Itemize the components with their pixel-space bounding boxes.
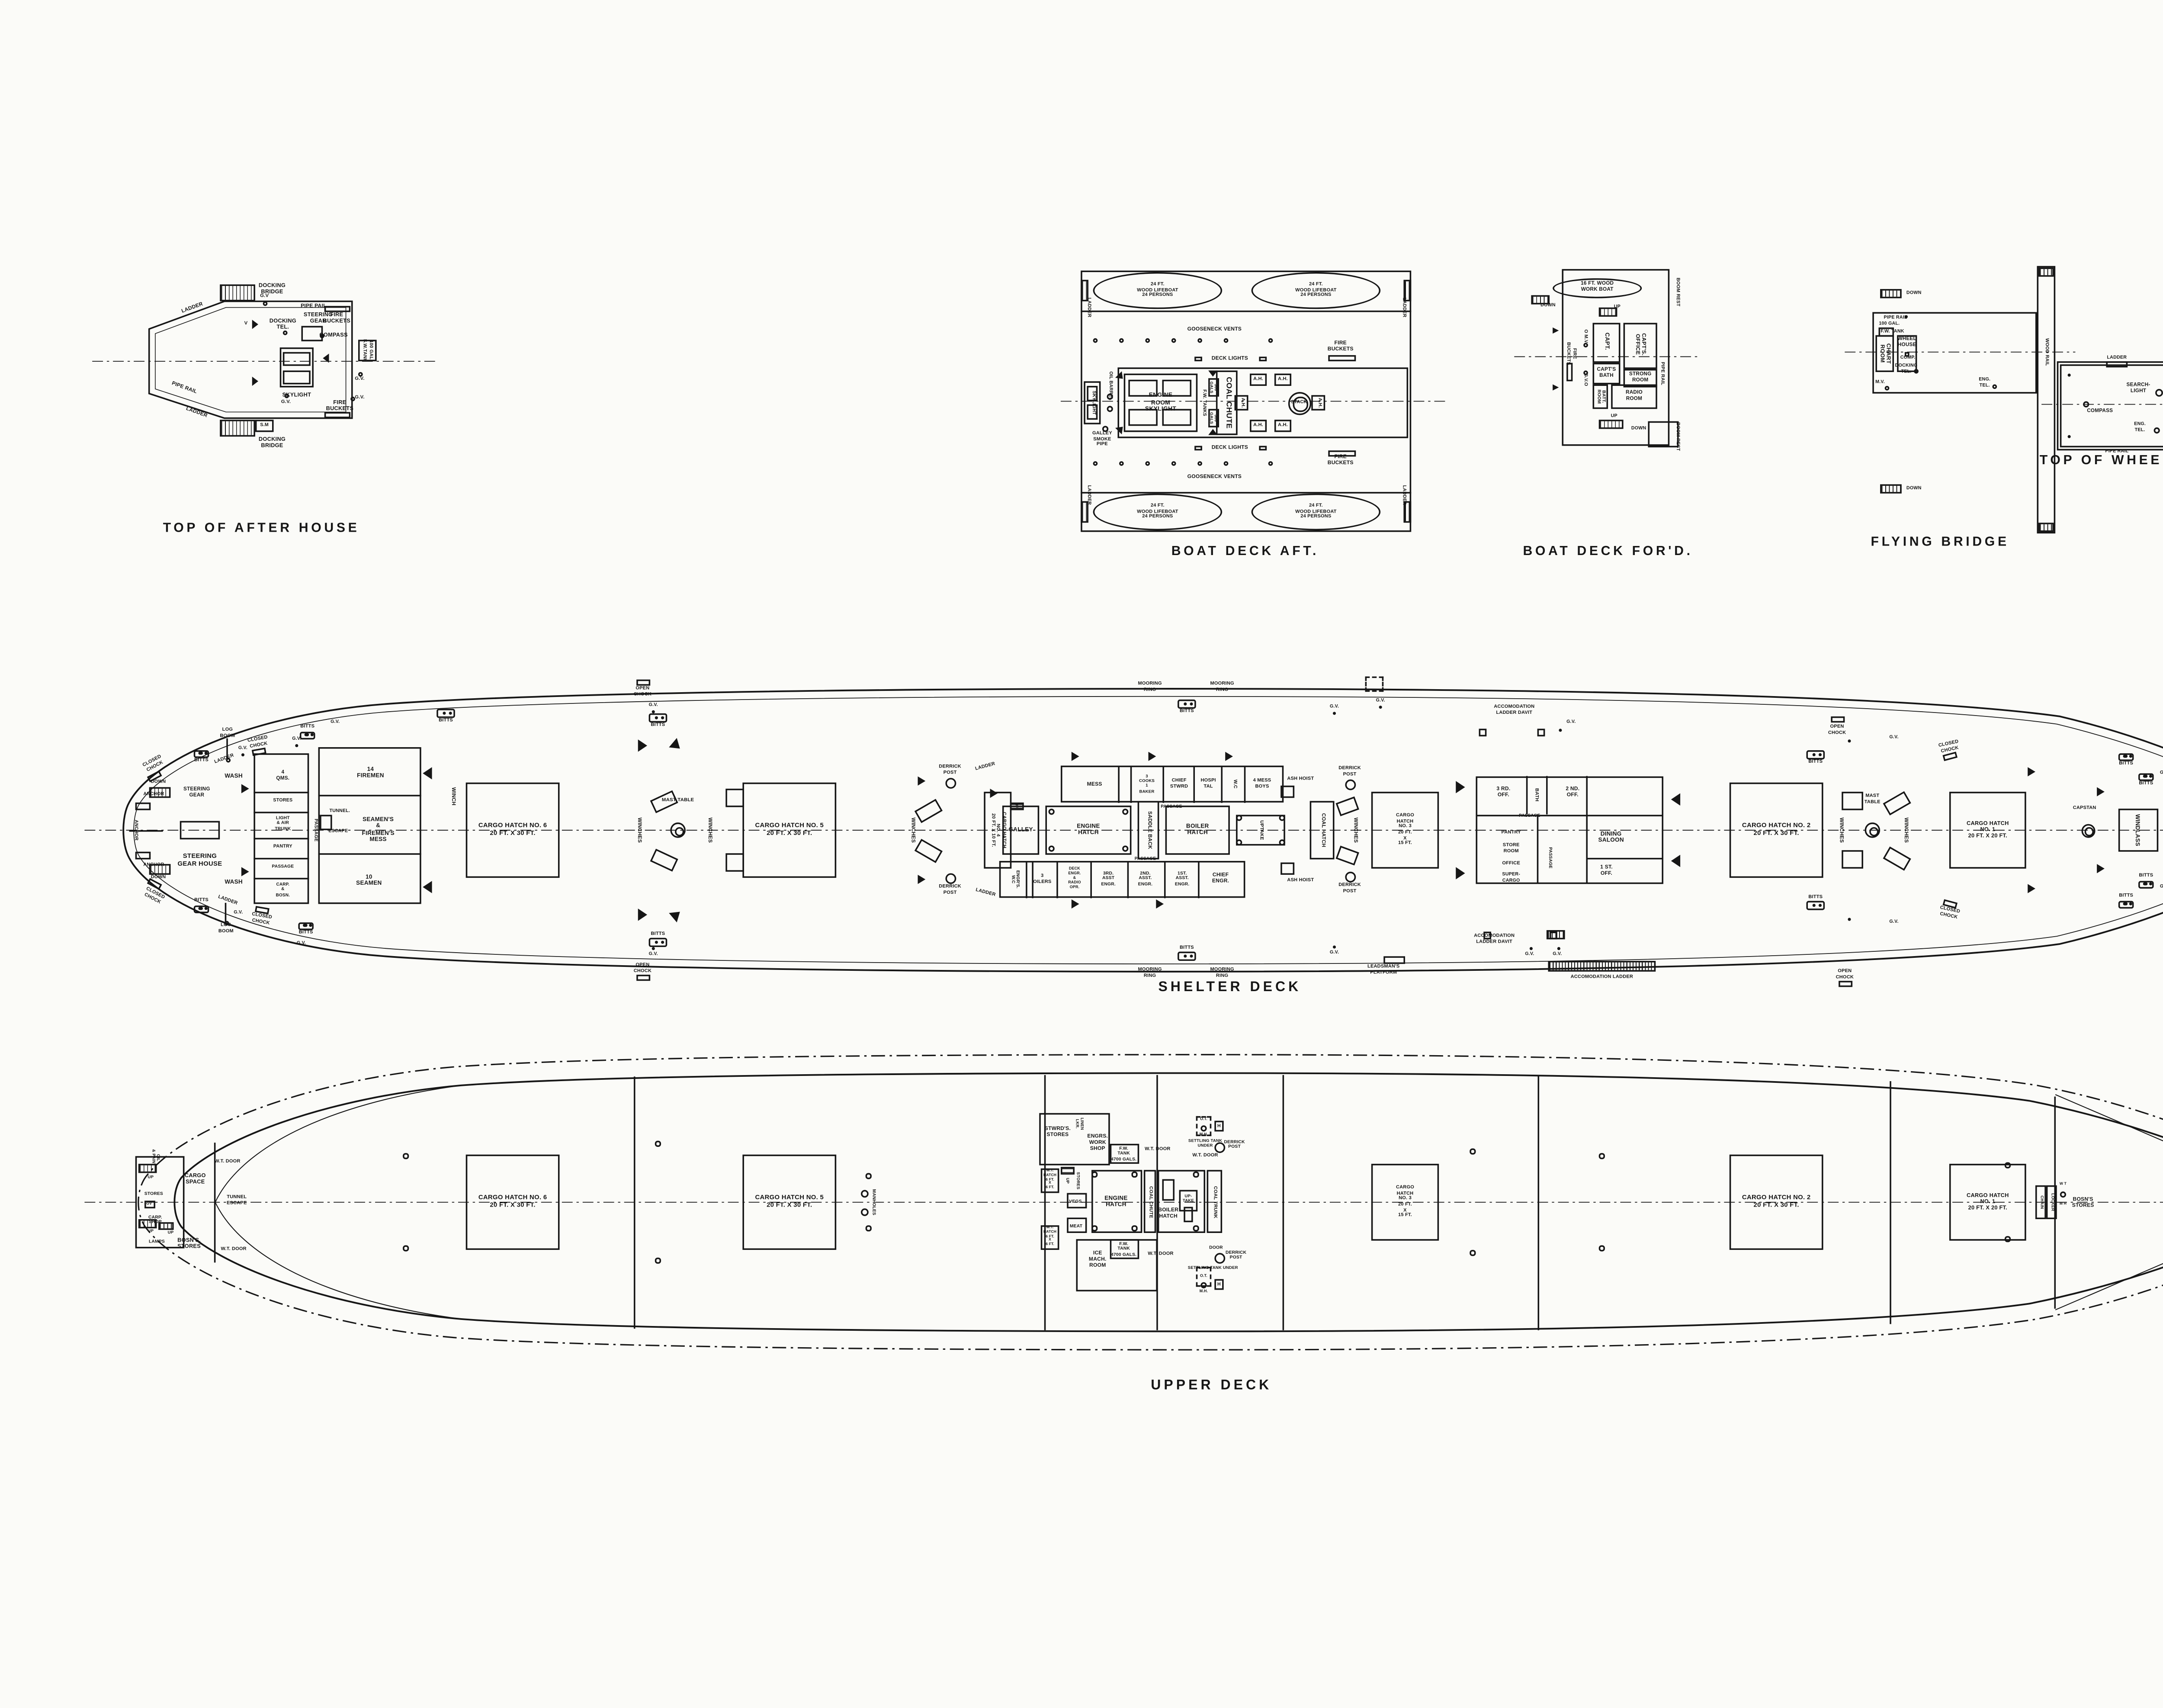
upper-deck-label-41: DOOR [1209,1246,1223,1251]
after-house-vc-mark-8 [251,320,257,329]
shelter-deck-label-73: DERRICK POST [1338,766,1361,777]
shelter-deck-label-87: 2ND. ASST. ENGR. [1138,871,1153,887]
shelter-deck-b-mark-30-dot-0 [303,924,307,927]
shelter-deck-label-94: CARGO HATCH NO. 3 20 FT. X 15 FT. [1396,813,1414,847]
shelter-deck-label-101: OFFICE [1502,861,1520,867]
shelter-deck-label-56: BITTS [1180,946,1194,951]
after-house-label-12: G.V. [281,400,291,405]
shelter-deck-label-118: WINCHES [1903,818,1909,843]
boat-deck-aft-label-28: GOOSENECK VENTS [1187,473,1242,479]
shelter-deck-label-106: LEADSMAN'S PLATFORM [1367,964,1399,976]
shelter-deck-label-8: G.V. [331,720,340,726]
shelter-deck-b-mark-37-dot-1 [1819,904,1822,907]
shelter-deck-label-49: BITTS [651,932,665,937]
shelter-deck-label-40: CARGO HATCH NO. 6 20 FT. X 30 FT. [478,822,547,838]
boat-deck-aft-label-8: GOOSENECK VENTS [1187,326,1242,332]
shelter-deck-vc-mark-64 [2028,766,2036,775]
wheel-house-top-label-0: LADDER [2107,356,2127,361]
upper-deck-c-mark-17 [1599,1153,1605,1159]
shelter-deck-label-45: WINCHES [636,818,642,843]
upper-deck-label-29: BOILER HATCH [1158,1207,1178,1220]
shelter-deck-label-103: PASSAGE [1547,847,1552,868]
shelter-deck-label-90: G.V. [1330,704,1339,710]
upper-deck-l-mark-3 [1157,1075,1158,1330]
shelter-deck-b-mark-27-dot-0 [199,751,202,755]
shelter-deck-label-50: CARGO HATCH NO. 5 20 FT. X 30 FT. [755,822,824,838]
upper-deck-c-mark-16 [1470,1250,1475,1255]
shelter-deck-st-mark-111 [1547,930,1565,939]
upper-deck-label-16: STWRD'S. STORES [1045,1125,1071,1138]
shelter-deck-l-mark-16 [1091,861,1092,898]
shelter-deck-label-23: PANTRY [273,844,292,850]
upper-deck-label-46: H [1217,1282,1221,1287]
shelter-deck-vc-mark-61 [1671,855,1680,867]
shelter-deck-label-44: MAST TABLE [662,798,694,804]
shelter-deck-label-54: MOORING RING [1138,967,1162,979]
shelter-deck-l-mark-8 [1131,766,1132,803]
boat-deck-aft-label-3: 24 FT. WOOD LIFEBOAT 24 PERSONS [1295,504,1337,520]
shelter-deck-l-mark-17 [1128,861,1129,898]
shelter-deck-label-64: GALLEY [1008,827,1033,834]
shelter-deck-b-mark-28-dot-1 [310,733,313,737]
shelter-deck-label-115: G.V. [1889,735,1898,741]
shelter-deck-label-10: DOWN [151,875,166,881]
after-house-label-7: COMPASS [319,332,347,338]
shelter-deck-l-mark-1 [254,811,309,812]
shelter-deck-b-mark-40-dot-1 [2128,902,2132,906]
upper-deck-label-43: SETTLING TANK UNDER [1188,1266,1238,1271]
shelter-deck-label-76: 3 COOKS 1 BAKER [1139,774,1155,794]
shelter-deck-label-129: G.V. [2160,771,2163,776]
upper-deck-label-32: W.T. DOOR [1192,1153,1218,1159]
shelter-deck-label-99: PANTRY [1502,831,1521,836]
upper-deck-c-mark-14 [866,1226,871,1231]
upper-deck-l-mark-2 [1045,1075,1046,1330]
flying-bridge-label-11: DOWN [1906,486,1922,492]
upper-deck-st-mark-37 [1060,1166,1074,1174]
flying-bridge-label-3: F.W. TANK [1881,329,1904,334]
shelter-deck-box-24 [1365,677,1384,692]
shelter-deck-l-mark-9 [1163,766,1164,803]
upper-deck-label-51: LOCKER [2049,1193,2054,1211]
shelter-deck-vc-mark-50 [1072,751,1080,760]
boat-deck-aft-label-10: FIRE BUCKETS [1328,340,1354,352]
shelter-deck-label-77: CHIEF STWRD [1170,778,1188,790]
boat-deck-ford-label-6: O M.V. [1582,329,1588,344]
drawing-sheet: 1032 SHEET 2 OF 2 DOCKING BRIDGELADDERPI… [0,0,2163,1708]
after-house-label-9: 100 GAL. S.W.TANK [362,339,373,362]
boat-deck-ford-label-17: BOAT DECK FOR'D. [1523,543,1693,558]
boat-deck-aft-r-mark-22 [1258,356,1266,361]
flying-bridge-label-5: WHEEL HOUSE [1897,337,1916,349]
upper-deck-label-19: F.W. TANK 4700 GALS. [1111,1147,1136,1162]
shelter-deck-l-mark-5 [318,794,421,795]
boat-deck-ford-label-0: 16 FT. WOOD WORK BOAT [1581,282,1614,294]
shelter-deck-label-67: BOILER HATCH [1186,823,1209,837]
shelter-deck-l-mark-19 [1199,861,1200,898]
boat-deck-aft-label-7: LADDER [1401,485,1406,505]
shelter-deck-label-124: CARGO HATCH NO. 1 20 FT. X 20 FT. [1967,820,2009,840]
upper-deck-c-mark-20 [2005,1236,2010,1242]
shelter-deck-label-18: STEERING GEAR [183,787,210,799]
shelter-deck-label-41: OPEN CHOCK [634,686,651,697]
shelter-deck-label-51: MOORING RING [1138,682,1162,693]
shelter-deck-l-mark-2 [254,838,309,838]
shelter-deck-label-111: ACCOMODATION LADDER [1571,975,1633,981]
shelter-deck-c-mark-69 [1049,845,1055,851]
shelter-deck-label-81: PASSAGE [1161,804,1182,809]
upper-deck-label-35: H [1217,1124,1221,1129]
shelter-deck-label-21: STORES [273,798,292,804]
shelter-deck-label-38: BITTS [299,931,313,936]
upper-deck-c-mark-22 [1132,1172,1137,1177]
shelter-deck-label-3: G.V. [238,746,247,751]
shelter-deck-cc-mark-102-inner [1869,827,1879,837]
boat-deck-aft-label-13: GALLEY SMOKE PIPE [1092,431,1112,448]
upper-deck-label-18: ENGRS. WORK SHOP [1087,1133,1108,1152]
upper-deck-label-54: BOSN'S STORES [2072,1196,2094,1209]
upper-deck-label-17: LINEN LKR. [1075,1117,1084,1130]
upper-deck-c-mark-15 [1470,1149,1475,1154]
boat-deck-aft-label-23: A.H. [1239,398,1244,408]
wheel-house-top-label-1: SEARCH- LIGHT [2127,383,2150,395]
shelter-deck-label-57: DERRICK POST [939,764,961,776]
shelter-deck-label-126: BITTS [2139,781,2153,787]
shelter-deck-label-112: CARGO HATCH NO. 2 20 FT. X 30 FT. [1742,822,1811,838]
shelter-deck-label-11: ANCHOR [132,820,138,841]
shelter-deck-label-6: BITTS [300,724,315,730]
shelter-deck-hb-mark-137 [1548,960,1656,971]
upper-deck-label-50: CHAIN [2039,1195,2044,1209]
shelter-deck-vc-mark-54 [1156,899,1164,908]
upper-deck-label-1: UP [148,1175,154,1180]
upper-deck-l-mark-7 [2055,1096,2056,1308]
flying-bridge-st-mark-3 [2038,523,2054,532]
shelter-deck-vc-mark-48 [638,909,647,921]
shelter-deck-label-85: DECK ENGR. & RADIO OPR. [1068,868,1081,891]
shelter-deck-label-66: SADDLE BACK [1146,811,1152,849]
upper-deck-c-mark-25 [1193,1172,1198,1177]
shelter-deck-box-21 [1537,729,1545,736]
shelter-deck-label-35: G.V. [234,911,243,916]
boat-deck-aft-label-27: FIRE BUCKETS [1328,453,1354,466]
upper-deck-label-11: W.T. DOOR [221,1247,246,1253]
boat-deck-ford-label-9: CAPT'S. OFFICE [1634,333,1647,356]
boat-deck-aft-c-mark-34 [1107,406,1113,412]
after-house-st-mark-0 [220,284,255,301]
shelter-deck-r-mark-91 [725,789,744,807]
upper-deck-ld-mark-8 [860,1075,861,1330]
shelter-deck-label-32: WINCH [450,787,456,806]
shelter-deck-label-109: G.V. [1525,952,1534,958]
boat-deck-ford-label-16: DOWN [1631,426,1646,432]
shelter-deck-vc-mark-60 [1671,793,1680,806]
upper-deck-label-45: M.H. [1200,1291,1208,1295]
shelter-deck-label-78: HOSPI TAL [1200,778,1216,790]
shelter-deck-label-86: 3RD. ASST ENGR. [1101,871,1116,887]
boat-deck-aft-label-12: SKYLIGHT [1090,391,1096,415]
shelter-deck-b-mark-28-dot-0 [305,733,308,737]
shelter-deck-label-30: SEAMEN'S & FIREMEN'S MESS [362,816,394,844]
shelter-deck-label-113: OPEN CHOCK [1828,725,1846,736]
boat-deck-ford-label-8: CAPT. [1603,333,1610,350]
shelter-deck-label-100: STORE ROOM [1503,843,1520,854]
shelter-deck-label-24: PASSAGE [272,864,294,870]
page-scaler: 1032 SHEET 2 OF 2 DOCKING BRIDGELADDERPI… [0,0,2163,1708]
boat-deck-aft-r-mark-21 [1194,356,1201,361]
shelter-deck-label-5: BITTS [194,758,209,764]
shelter-deck-b-mark-41-dot-0 [2144,882,2147,886]
shelter-deck-label-62: CARGO HATCH NO. 4 20 FT. X 10 FT. [989,812,1006,848]
shelter-deck-r-mark-97 [1842,792,1863,810]
shelter-deck-label-79: W.C [1232,780,1237,789]
upper-deck-c-mark-10 [403,1246,408,1251]
boat-deck-aft-label-25: STACK [1291,400,1307,406]
boat-deck-aft-label-29: BOAT DECK AFT. [1171,543,1319,558]
upper-deck-label-25: VEGS. [1069,1200,1083,1205]
upper-deck-c-mark-9 [403,1153,408,1159]
shelter-deck-label-70: ASH HOIST [1287,878,1314,884]
shelter-deck-cc-mark-101 [670,822,686,838]
shelter-deck-box-18 [1280,786,1294,798]
boat-deck-aft-label-14: ENGINE ROOM SKYLIGHT [1145,392,1176,413]
shelter-deck-b-mark-33 [649,938,668,947]
shelter-deck-l-mark-15 [1057,861,1058,898]
shelter-deck-c-mark-70 [1122,845,1128,851]
boat-deck-ford-label-12: BATT. ROOM [1595,389,1605,404]
boat-deck-aft-label-5: LADDER [1401,298,1406,318]
shelter-deck-vc-mark-52 [1226,751,1233,760]
upper-deck-c-mark-11 [655,1141,661,1146]
shelter-deck-label-135: CAPSTAN [2073,806,2096,812]
shelter-deck-vc-mark-59 [1456,867,1465,879]
flying-bridge-box-1 [2037,266,2056,533]
shelter-deck-label-42: G.V. [649,703,658,709]
shelter-deck-b-mark-29-dot-0 [199,907,202,910]
boat-deck-aft-label-1: 24 FT. WOOD LIFEBOAT 24 PERSONS [1295,282,1337,299]
shelter-deck-label-25: CARP. & BOSN. [276,883,290,898]
upper-deck-label-30: UP- TAKE [1183,1194,1194,1204]
shelter-deck-label-120: BITTS [1808,895,1823,901]
boat-deck-ford-label-5: FIRE BUCKETS [1566,342,1576,365]
shelter-deck-label-39: G.V. [297,941,306,947]
upper-deck-l-mark-1 [635,1076,635,1329]
boat-deck-aft-label-11: OIL BARREL [1107,371,1113,400]
shelter-deck-b-mark-30 [298,921,314,929]
shelter-deck-label-89: CHIEF ENGR. [1212,872,1229,884]
boat-deck-aft-r-mark-23 [1194,445,1201,450]
boat-deck-ford-label-14: PIPE RAIL [1659,362,1665,385]
upper-deck-label-26: MEAT [1070,1224,1082,1230]
boat-deck-aft-label-15: F.W. TANKS [1200,389,1206,416]
shelter-deck-b-mark-27 [194,749,209,757]
upper-deck-label-22: W.T. HATCH 6 FT. X 6 FT. [1043,1227,1056,1249]
shelter-deck-label-68: UPTAKE [1258,820,1263,840]
shelter-deck-vc-mark-55 [990,788,998,797]
boat-deck-ford-label-2: UP [1614,305,1621,310]
shelter-deck-label-74: DERRICK POST [1338,883,1361,894]
shelter-deck-label-80: 4 MESS BOYS [1253,778,1271,790]
flying-bridge-label-2: 100 GAL. [1879,322,1900,327]
shelter-deck-b-mark-34-dot-1 [1190,703,1193,706]
upper-deck-label-28: COAL CHUTE [1147,1186,1153,1218]
upper-deck-c-mark-19 [2005,1162,2010,1168]
after-house-label-11: G.V. [355,377,365,382]
upper-deck-label-38: ICE MACH. ROOM [1089,1250,1107,1268]
after-house-label-6: DOCKING TEL. [270,318,296,331]
upper-deck-label-24: STORES [1075,1172,1080,1189]
shelter-deck-b-mark-27-dot-1 [204,751,207,755]
shelter-deck-r-mark-92 [725,853,744,872]
wheel-house-top-label-5: TOP OF WHEEL HOUSE [2040,452,2163,468]
shelter-deck-label-110: G.V. [1553,952,1562,958]
shelter-deck-label-28: ESCAPE [328,829,348,835]
shelter-deck-label-105: 1 ST. OFF. [1600,864,1613,876]
boat-deck-aft-label-18: COAL CHUTE [1222,377,1231,429]
shelter-deck-cc-mark-101-inner [674,827,684,837]
shelter-deck-box-19 [1280,863,1294,875]
after-house-vc-mark-10 [322,353,328,363]
shelter-deck-b-mark-29-dot-1 [204,907,207,910]
wheel-house-top-c-mark-1 [2083,401,2089,407]
upper-deck-label-53: M H [2060,1203,2067,1207]
after-house-label-5: STEERING GEAR [304,312,333,325]
shelter-deck-label-46: WINCHES [707,818,713,843]
shelter-deck-l-mark-25 [1586,857,1663,858]
after-house-box-2 [283,370,311,384]
shelter-deck-b-mark-39-dot-0 [2144,775,2147,778]
shelter-deck-label-125: BITTS [2119,761,2133,767]
flying-bridge-label-7: DOCKING TEL. [1895,363,1918,374]
upper-deck-c-mark-31 [2060,1191,2066,1198]
shelter-deck-label-13: ANCHOR [143,863,164,868]
shelter-deck-b-mark-34-dot-0 [1184,703,1187,706]
upper-deck-label-3: GV [146,1203,152,1207]
shelter-deck-label-37: BITTS [194,898,209,904]
flying-bridge-st-mark-2 [2038,267,2054,276]
boat-deck-aft-r-mark-24 [1258,445,1266,450]
shelter-deck-label-43: BITTS [651,723,665,729]
boat-deck-aft-label-9: DECK LIGHTS [1212,355,1248,361]
shelter-deck-label-31: 10 SEAMEN [356,874,382,888]
boat-deck-aft-vc-mark-31 [1208,370,1217,376]
boat-deck-ford-vc-mark-6 [1553,327,1559,333]
boat-deck-aft-label-0: 24 FT. WOOD LIFEBOAT 24 PERSONS [1137,282,1178,299]
boat-deck-ford-label-4: BOOM REST [1675,422,1680,451]
shelter-deck-label-83: ENGR'S. W.C [1010,870,1020,889]
upper-deck-r-mark-38 [1162,1179,1175,1201]
shelter-deck-label-59: DERRICK POST [939,885,961,896]
shelter-deck-b-mark-31-dot-1 [449,712,452,715]
after-house-label-18: DOCKING BRIDGE [259,436,286,449]
shelter-deck-label-34: LOG BOOM [218,923,234,934]
shelter-deck-label-47: OPEN CHOCK [634,963,651,974]
flying-bridge-label-12: FLYING BRIDGE [1871,533,2009,549]
after-house-label-13: G.V. [355,395,365,401]
shelter-deck-b-mark-28 [300,731,315,739]
boat-deck-ford-box-7 [1566,363,1573,382]
shelter-deck-label-33: BITTS [439,718,453,724]
shelter-deck-c-mark-74 [1279,839,1285,845]
shelter-deck-b-mark-35 [1178,952,1196,961]
upper-deck-label-9: BOSN'S. STORES [177,1237,201,1250]
upper-deck-c-mark-24 [1132,1226,1137,1231]
upper-deck-l-mark-4 [1283,1075,1284,1330]
upper-deck-label-10: W.T. DOOR [215,1159,240,1165]
shelter-deck-label-136: WINDLASS [2134,814,2141,846]
shelter-deck-c-mark-68 [1122,809,1128,815]
shelter-deck-b-mark-36-dot-1 [1819,753,1822,757]
upper-deck-label-44: O.T. [1200,1275,1207,1280]
shelter-deck-b-mark-41-dot-1 [2148,882,2152,886]
wheel-house-top-label-3: ENG. TEL. [2134,422,2146,433]
upper-deck-label-39: F.W. TANK 4700 GALS. [1111,1242,1136,1258]
boat-deck-aft-label-21: A.H. [1253,423,1263,429]
upper-deck-label-40: W.T. DOOR [1148,1252,1173,1257]
upper-deck-label-15: MANHOLES [870,1189,876,1215]
flying-bridge-label-8: M.V. [1875,380,1885,386]
shelter-deck-vc-mark-62 [2097,787,2105,796]
shelter-deck-l-mark-18 [1165,861,1166,898]
shelter-deck-label-48: G.V. [649,952,658,958]
shelter-deck-vc-mark-51 [1149,751,1156,760]
shelter-deck-l-mark-23 [1476,815,1663,815]
boat-deck-ford-label-13: RADIO ROOM [1626,391,1643,403]
shelter-deck-b-mark-38-dot-0 [2124,754,2127,758]
boat-deck-aft-label-22: A.H. [1278,423,1288,429]
shelter-deck-b-mark-38 [2118,752,2134,760]
boat-deck-ford-label-7: G.V.O [1582,373,1588,386]
upper-deck-c-mark-23 [1092,1226,1097,1231]
upper-deck-r-mark-39 [1184,1207,1193,1223]
shelter-deck-b-mark-41 [2138,880,2154,888]
boat-deck-ford-label-11: STRONG ROOM [1629,372,1652,384]
boat-deck-ford-label-10: CAPT'S BATH [1597,368,1616,380]
shelter-deck-vc-mark-65 [2028,883,2036,893]
shelter-deck-label-95: 3 RD. OFF. [1496,786,1510,798]
shelter-deck-label-108: ACCOMODATION LADDER DAVIT [1474,934,1515,945]
upper-deck-label-49: CARGO HATCH NO. 1 20 FT. X 20 FT. [1967,1192,2009,1212]
shelter-deck-label-97: 2 ND. OFF. [1566,786,1579,798]
upper-deck-label-34: M.H. [1200,1134,1208,1138]
shelter-deck-r-mark-126 [135,802,151,809]
after-house-vc-mark-9 [251,377,257,386]
shelter-deck-label-55: MOORING RING [1210,967,1234,979]
shelter-deck-b-mark-32-dot-0 [655,716,658,720]
shelter-deck-label-119: OPEN CHOCK [1836,969,1854,980]
shelter-deck-vc-mark-42 [242,783,250,793]
shelter-deck-label-29: 14 FIREMEN [357,767,384,780]
shelter-deck-b-mark-39 [2138,773,2154,780]
shelter-deck-box-20 [1479,729,1487,736]
shelter-deck-label-91: G.V. [1376,698,1385,704]
shelter-deck-r-mark-119 [1838,981,1852,987]
upper-deck-c-mark-12 [655,1258,661,1263]
boat-deck-ford-label-15: UP [1611,414,1617,420]
shelter-deck-b-mark-32-dot-1 [661,716,664,720]
after-house-label-17: S.M [260,423,269,429]
wheel-house-top-label-2: COMPASS [2087,409,2113,415]
shelter-deck-label-127: BITTS [2119,893,2133,899]
boat-deck-aft-l-mark-0 [1081,310,1411,311]
shelter-deck-label-26: PASSAGE [311,819,317,842]
wheel-house-top-box-0 [2060,364,2163,447]
upper-deck-label-20: W.T. DOOR [1145,1147,1170,1153]
boat-deck-aft-label-17: 300 GALS [1207,412,1217,424]
boat-deck-aft-label-4: LADDER [1086,298,1091,318]
after-house-box-1 [283,352,311,366]
upper-deck-label-33: O.T. [1200,1118,1207,1123]
